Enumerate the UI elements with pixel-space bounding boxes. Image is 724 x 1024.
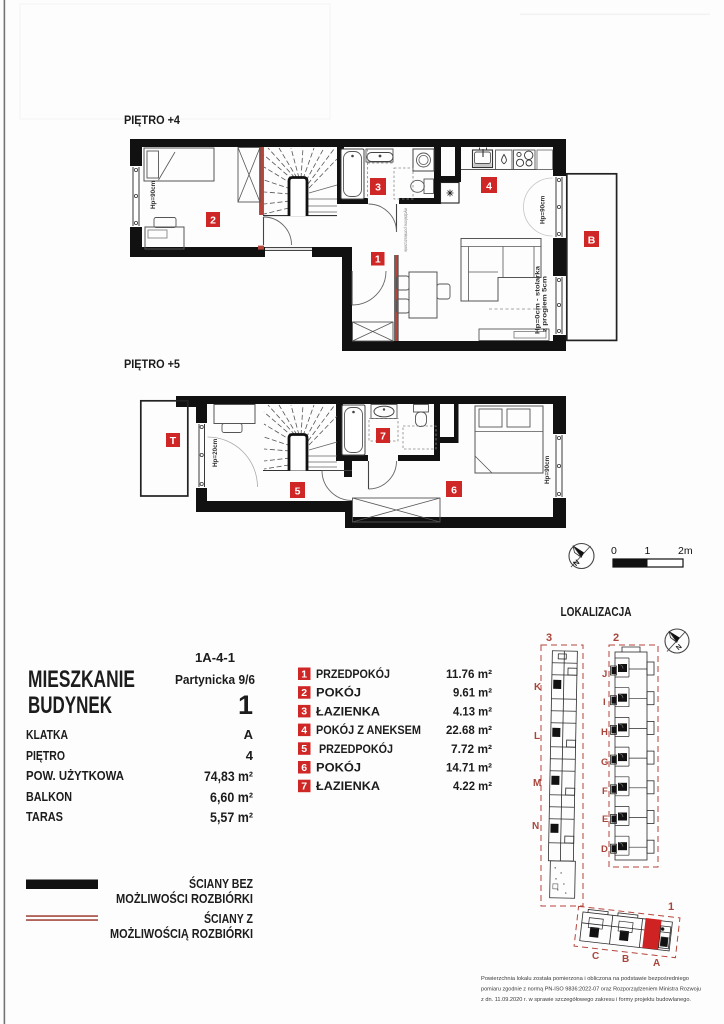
svg-text:2: 2 <box>301 687 307 699</box>
svg-text:2: 2 <box>613 632 619 644</box>
svg-text:4.22 m²: 4.22 m² <box>453 779 492 793</box>
svg-text:BALKON: BALKON <box>26 789 72 804</box>
svg-text:ŚCIANY Z: ŚCIANY Z <box>204 911 253 926</box>
svg-text:A: A <box>244 727 254 742</box>
svg-text:4.13 m²: 4.13 m² <box>453 704 492 718</box>
svg-text:22.68 m²: 22.68 m² <box>446 723 492 737</box>
svg-text:E: E <box>602 814 608 825</box>
svg-text:MOŻLIWOŚCIĄ ROZBIÓRKI: MOŻLIWOŚCIĄ ROZBIÓRKI <box>110 926 253 941</box>
svg-text:J: J <box>602 669 607 680</box>
svg-text:Hp=90cm: Hp=90cm <box>150 180 157 209</box>
svg-text:Hp=0cm - stolarka: Hp=0cm - stolarka <box>535 265 542 334</box>
svg-text:3: 3 <box>301 706 307 718</box>
svg-text:POKÓJ: POKÓJ <box>316 760 361 775</box>
svg-text:5,57 m²: 5,57 m² <box>210 810 253 825</box>
svg-text:z dn. 11.09.2020 r. w sprawie: z dn. 11.09.2020 r. w sprawie szczegółow… <box>481 997 691 1003</box>
svg-text:Hp=20cm: Hp=20cm <box>212 438 219 467</box>
svg-text:KLATKA: KLATKA <box>26 727 68 742</box>
svg-text:3: 3 <box>375 182 381 194</box>
svg-text:wydzielone pomieszczenie: wydzielone pomieszczenie <box>403 208 409 252</box>
svg-text:0: 0 <box>611 545 617 557</box>
svg-text:T: T <box>170 435 177 447</box>
svg-text:Powierzchnia lokalu została po: Powierzchnia lokalu została pomierzona i… <box>481 976 689 982</box>
svg-text:7: 7 <box>380 430 386 442</box>
svg-text:pomiaru zgodnie z normą PN-ISO: pomiaru zgodnie z normą PN-ISO 9836:2022… <box>481 987 701 993</box>
svg-text:ŁAZIENKA: ŁAZIENKA <box>316 779 380 793</box>
svg-text:4: 4 <box>486 180 492 192</box>
svg-text:6: 6 <box>451 484 457 496</box>
svg-text:6: 6 <box>301 762 307 774</box>
svg-text:ŁAZIENKA: ŁAZIENKA <box>316 704 380 718</box>
svg-text:9.61 m²: 9.61 m² <box>453 686 492 700</box>
svg-text:TARAS: TARAS <box>26 809 63 824</box>
svg-text:3: 3 <box>546 632 552 644</box>
svg-text:74,83 m²: 74,83 m² <box>204 769 253 784</box>
svg-text:POW. UŻYTKOWA: POW. UŻYTKOWA <box>26 768 125 783</box>
svg-text:MIESZKANIE: MIESZKANIE <box>28 666 135 693</box>
svg-text:D: D <box>601 844 608 855</box>
svg-text:PIĘTRO +5: PIĘTRO +5 <box>124 359 181 371</box>
svg-text:z progiem 5cm: z progiem 5cm <box>542 275 549 332</box>
svg-text:F: F <box>602 786 608 797</box>
svg-text:Hp=90cm: Hp=90cm <box>544 455 551 484</box>
svg-text:M: M <box>533 778 541 789</box>
svg-text:B: B <box>588 234 596 246</box>
svg-text:Hp=90cm: Hp=90cm <box>540 195 547 224</box>
svg-text:N: N <box>532 821 539 832</box>
svg-text:A: A <box>653 958 660 969</box>
svg-text:PIĘTRO: PIĘTRO <box>26 748 65 763</box>
svg-text:1: 1 <box>238 690 253 720</box>
svg-text:5: 5 <box>301 743 307 755</box>
svg-text:L: L <box>534 731 540 742</box>
svg-text:6,60 m²: 6,60 m² <box>210 790 253 805</box>
svg-text:4: 4 <box>246 748 254 763</box>
svg-text:I: I <box>603 697 606 708</box>
svg-text:LOKALIZACJA: LOKALIZACJA <box>561 605 632 619</box>
svg-text:PRZEDPOKÓJ: PRZEDPOKÓJ <box>316 666 390 681</box>
svg-text:1: 1 <box>301 668 307 680</box>
svg-text:PIĘTRO +4: PIĘTRO +4 <box>124 115 181 127</box>
svg-text:G: G <box>601 757 608 768</box>
svg-text:2: 2 <box>210 214 216 226</box>
svg-text:C: C <box>592 951 599 962</box>
svg-text:7.72 m²: 7.72 m² <box>451 742 492 756</box>
svg-text:ŚCIANY BEZ: ŚCIANY BEZ <box>189 876 253 891</box>
svg-text:1: 1 <box>668 901 674 913</box>
svg-text:B: B <box>622 954 629 965</box>
svg-text:PRZEDPOKÓJ: PRZEDPOKÓJ <box>319 741 393 756</box>
svg-text:1A-4-1: 1A-4-1 <box>195 651 235 665</box>
svg-text:Partynicka 9/6: Partynicka 9/6 <box>175 672 255 687</box>
svg-text:4: 4 <box>301 724 307 736</box>
svg-text:11.76 m²: 11.76 m² <box>446 667 492 681</box>
svg-text:1: 1 <box>645 545 651 557</box>
svg-text:H: H <box>601 727 608 738</box>
svg-text:5: 5 <box>295 485 301 497</box>
svg-text:7: 7 <box>301 781 307 793</box>
svg-text:BUDYNEK: BUDYNEK <box>28 692 112 719</box>
svg-text:1: 1 <box>375 254 381 266</box>
svg-text:K: K <box>534 682 542 693</box>
svg-text:MOŻLIWOŚCI ROZBIÓRKI: MOŻLIWOŚCI ROZBIÓRKI <box>116 891 253 906</box>
svg-text:2m: 2m <box>678 545 693 557</box>
svg-text:14.71 m²: 14.71 m² <box>446 761 492 775</box>
svg-text:POKÓJ Z ANEKSEM: POKÓJ Z ANEKSEM <box>316 722 421 737</box>
svg-text:POKÓJ: POKÓJ <box>316 685 361 700</box>
